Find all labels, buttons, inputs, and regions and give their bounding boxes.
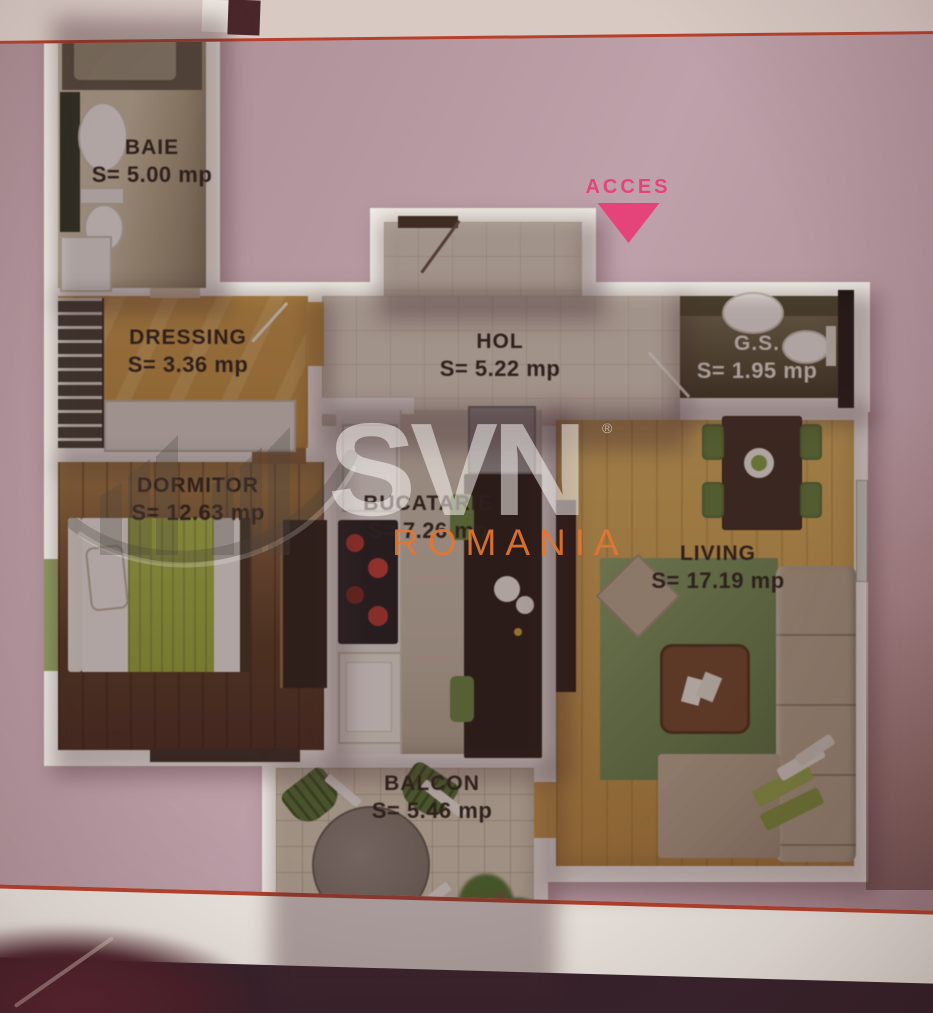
access-layer: ACCES [0, 0, 933, 1013]
access-arrow-icon [597, 203, 659, 243]
floor-plan-photo: BAIE S= 5.00 mp DRESSING S= 3.36 mp HOL … [0, 0, 933, 1013]
access-label: ACCES [585, 176, 670, 199]
access-marker: ACCES [585, 176, 670, 243]
